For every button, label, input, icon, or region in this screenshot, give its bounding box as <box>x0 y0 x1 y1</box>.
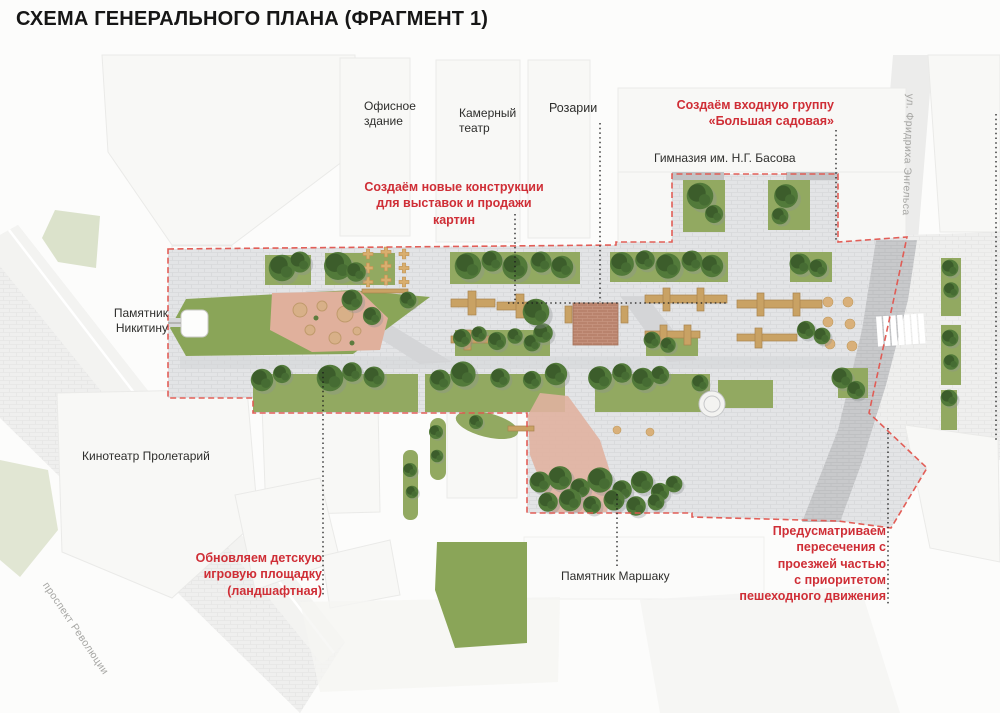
label-nikitin-monument: Памятник Никитину <box>106 306 168 337</box>
label-office-building: Офисное здание <box>364 99 416 130</box>
annotation-art-constructions: Создаём новые конструкции для выставок и… <box>362 179 546 228</box>
label-proletariy-cinema: Кинотеатр Пролетарий <box>82 449 210 464</box>
label-marshak-monument: Памятник Маршаку <box>561 569 670 584</box>
label-chamber-theater: Камерный театр <box>459 106 516 137</box>
planter-grid <box>363 247 409 287</box>
red-square-plaza <box>573 303 618 345</box>
annotation-crossings: Предусматриваем пересечения с проезжей ч… <box>724 523 886 604</box>
nikitin-monument <box>181 310 208 337</box>
label-rosaries: Розарии <box>549 100 597 116</box>
annotation-entrance-group: Создаём входную группу «Большая садовая» <box>662 97 834 130</box>
annotation-playground: Обновляем детскую игровую площадку (ланд… <box>192 550 322 599</box>
page-title: СХЕМА ГЕНЕРАЛЬНОГО ПЛАНА (ФРАГМЕНТ 1) <box>16 8 488 31</box>
label-gymnasium: Гимназия им. Н.Г. Басова <box>654 151 796 166</box>
fountain <box>699 391 725 417</box>
general-plan-scheme: СХЕМА ГЕНЕРАЛЬНОГО ПЛАНА (ФРАГМЕНТ 1) Оф… <box>0 0 1000 713</box>
